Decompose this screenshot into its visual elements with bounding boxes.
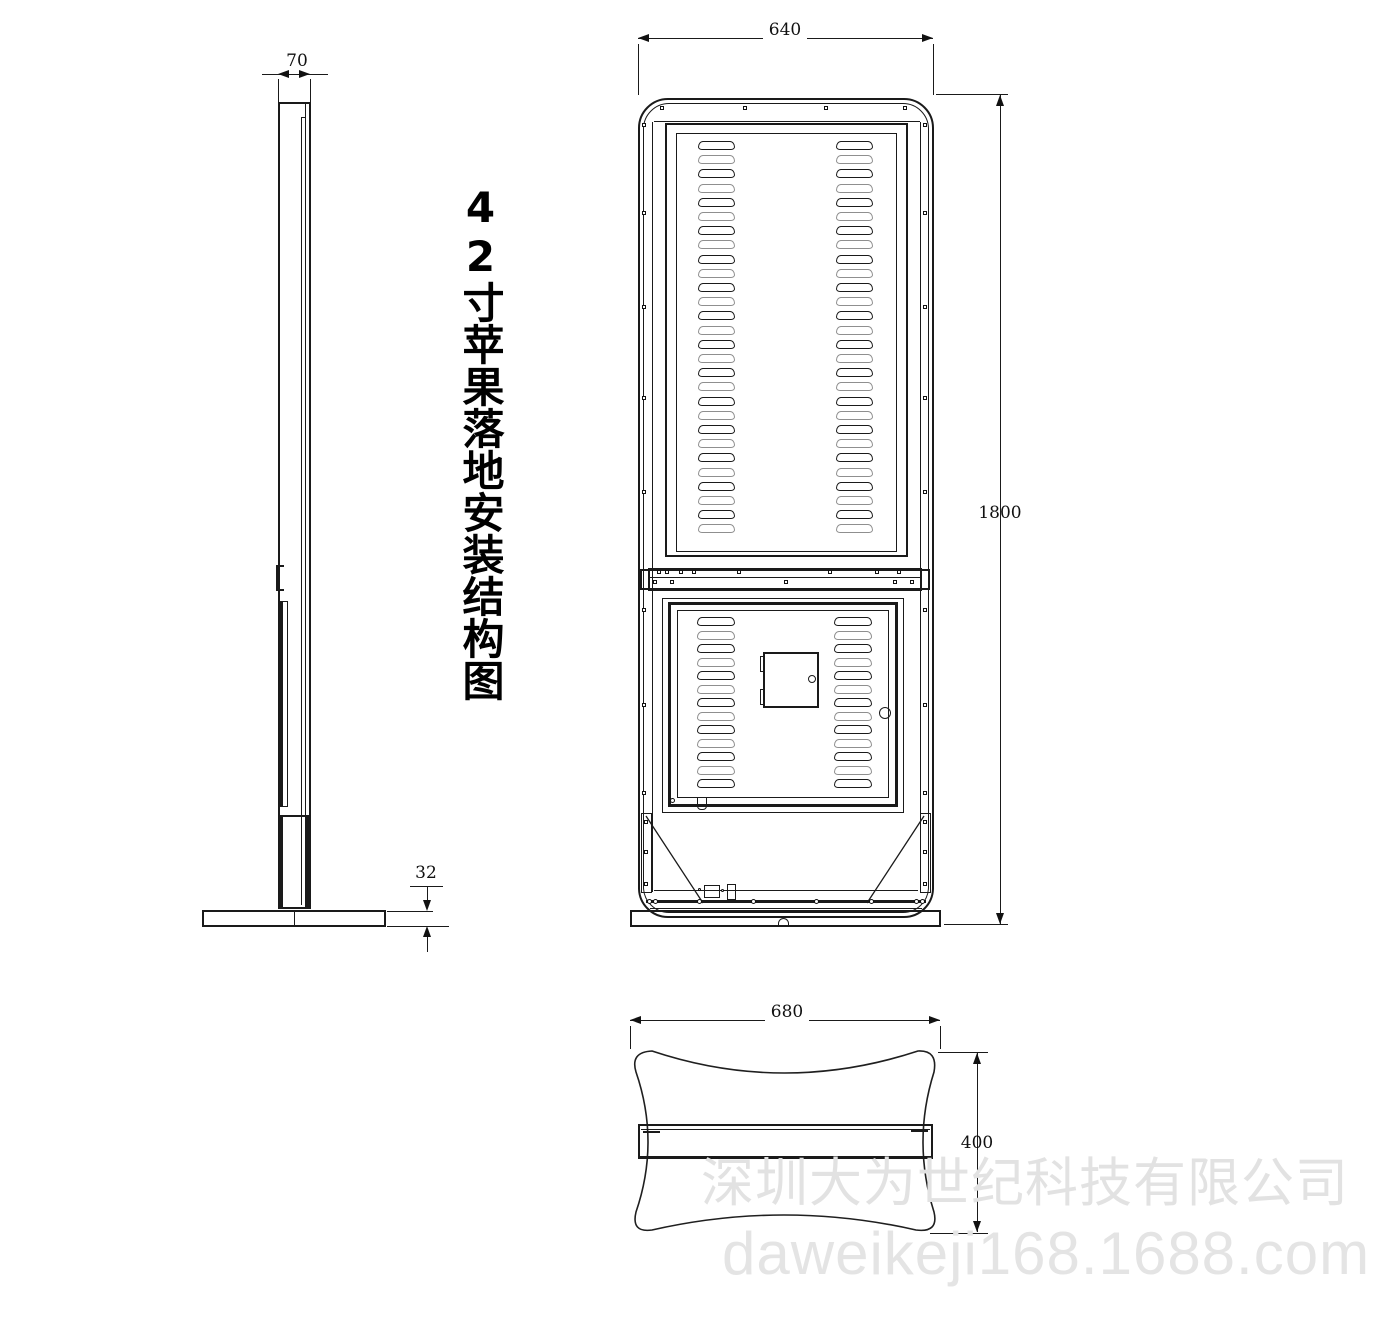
- outline-rect: [630, 910, 941, 927]
- outline-rect: [760, 689, 765, 705]
- drawing-line: [654, 890, 918, 891]
- drawing-line: [305, 104, 306, 907]
- screw-icon: [679, 570, 683, 574]
- watermark-url: daweikeji168.1688.com: [722, 1219, 1370, 1288]
- screw-icon: [642, 123, 646, 127]
- drawing-line: [262, 74, 328, 75]
- screw-icon: [653, 580, 657, 584]
- drawing-line: [387, 926, 449, 927]
- screw-icon: [910, 580, 914, 584]
- screw-icon: [657, 570, 661, 574]
- dim-base-width: 680: [765, 1002, 809, 1022]
- drawing-line: [652, 122, 653, 892]
- drawing-line: [638, 44, 639, 95]
- screw-icon: [737, 570, 741, 574]
- screw-icon: [923, 396, 927, 400]
- screw-icon: [784, 580, 788, 584]
- drawing-line: [294, 911, 295, 926]
- screw-icon: [923, 882, 927, 886]
- drawing-line: [630, 1026, 631, 1049]
- screw-icon: [923, 791, 927, 795]
- screw-icon: [644, 882, 648, 886]
- drawing-line: [920, 122, 921, 892]
- dimension-arrow-icon: [278, 70, 289, 78]
- drawing-line: [933, 44, 934, 95]
- screw-icon: [923, 703, 927, 707]
- screw-icon: [923, 211, 927, 215]
- screw-icon: [923, 123, 927, 127]
- screw-icon: [642, 703, 646, 707]
- outline-rect: [280, 601, 288, 807]
- drawing-line: [643, 1131, 660, 1133]
- screw-icon: [828, 570, 832, 574]
- drawing-line: [650, 908, 922, 909]
- drawing-line: [646, 900, 926, 903]
- outline-rect: [727, 884, 736, 900]
- screw-icon: [923, 608, 927, 612]
- screw-icon: [665, 570, 669, 574]
- screw-icon: [814, 899, 819, 904]
- screw-icon: [893, 580, 897, 584]
- screw-icon: [644, 820, 648, 824]
- screw-icon: [670, 798, 675, 803]
- drawing-line: [944, 924, 1008, 925]
- outline-rect: [920, 569, 930, 590]
- dimension-arrow-icon: [299, 70, 310, 78]
- dimension-arrow-icon: [996, 95, 1004, 106]
- dimension-arrow-icon: [922, 34, 933, 42]
- drawing-line: [278, 79, 279, 102]
- drawing-line: [387, 911, 433, 912]
- dimension-arrow-icon: [996, 913, 1004, 924]
- screw-icon: [642, 396, 646, 400]
- screw-icon: [923, 305, 927, 309]
- drawing-line: [310, 79, 311, 102]
- screw-icon: [692, 570, 696, 574]
- screw-icon: [920, 899, 925, 904]
- screw-icon: [642, 791, 646, 795]
- drawing-line: [650, 577, 920, 578]
- drawing-line: [301, 117, 302, 905]
- dim-side-depth: 70: [279, 51, 315, 71]
- drawing-line: [427, 887, 428, 900]
- drawing-canvas: 42寸苹果落地安装结构图 深圳大为世纪科技有限公司 daweikeji168.1…: [0, 0, 1381, 1320]
- screw-icon: [642, 305, 646, 309]
- outline-rect: [760, 656, 765, 672]
- screw-icon: [697, 899, 702, 904]
- screw-icon: [743, 106, 747, 110]
- drawing-line: [654, 121, 920, 122]
- screw-icon: [721, 889, 724, 892]
- screw-icon: [670, 580, 674, 584]
- outline-rect: [808, 675, 816, 683]
- screw-icon: [642, 490, 646, 494]
- screw-icon: [660, 106, 664, 110]
- drawing-line: [301, 117, 306, 118]
- screw-icon: [698, 888, 701, 891]
- drawing-line: [641, 1129, 930, 1130]
- screw-icon: [824, 106, 828, 110]
- screw-icon: [653, 899, 658, 904]
- screw-icon: [647, 899, 652, 904]
- screw-icon: [642, 608, 646, 612]
- screw-icon: [875, 570, 879, 574]
- dimension-arrow-icon: [638, 34, 649, 42]
- screw-icon: [923, 820, 927, 824]
- dim-front-width: 640: [763, 20, 807, 40]
- screw-icon: [897, 570, 901, 574]
- dim-base-plate-thickness: 32: [405, 863, 447, 883]
- outline-rect: [697, 797, 707, 810]
- screw-icon: [923, 490, 927, 494]
- screw-icon: [914, 899, 919, 904]
- screw-icon: [644, 850, 648, 854]
- screw-icon: [642, 211, 646, 215]
- dimension-arrow-icon: [423, 926, 431, 937]
- screw-icon: [751, 899, 756, 904]
- dim-overall-height: 1800: [976, 503, 1024, 523]
- drawing-line: [427, 937, 428, 952]
- screw-icon: [903, 106, 907, 110]
- outline-rect: [640, 569, 650, 590]
- drawing-title: 42寸苹果落地安装结构图: [459, 183, 501, 701]
- drawing-line: [911, 1130, 928, 1132]
- outline-rect: [879, 707, 891, 719]
- screw-icon: [869, 899, 874, 904]
- screw-icon: [923, 850, 927, 854]
- dimension-arrow-icon: [929, 1016, 940, 1024]
- dimension-arrow-icon: [423, 900, 431, 911]
- outline-rect: [704, 885, 720, 898]
- outline-rect: [676, 133, 897, 552]
- drawing-line: [940, 1026, 941, 1049]
- watermark-company: 深圳大为世纪科技有限公司: [701, 1141, 1349, 1217]
- dimension-arrow-icon: [973, 1053, 981, 1064]
- dimension-arrow-icon: [630, 1016, 641, 1024]
